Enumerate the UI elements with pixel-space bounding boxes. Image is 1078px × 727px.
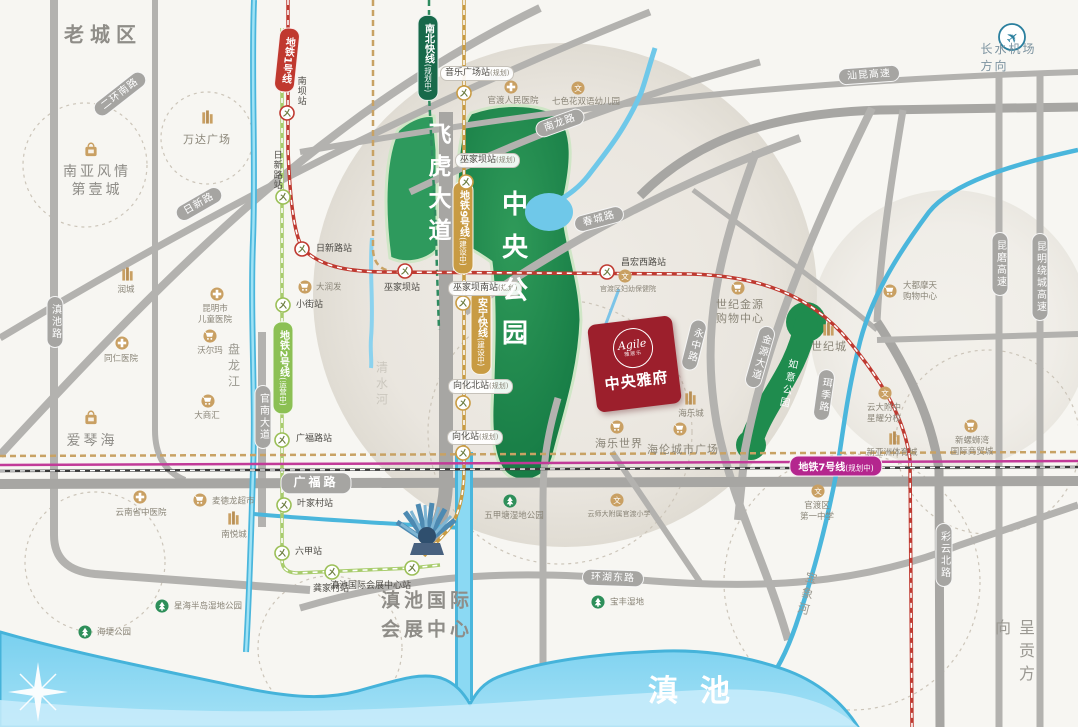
tree-icon — [78, 625, 93, 640]
cross-icon — [133, 490, 148, 505]
station-name: 小街站 — [296, 300, 323, 310]
cart-icon — [731, 281, 746, 296]
poi-label-26: 大都摩天 购物中心 — [903, 281, 937, 303]
station-name: 向化站 — [452, 432, 479, 442]
metro-line-label-3: 地铁9号线(建设中) — [453, 181, 474, 274]
station-label-1: 日新路站 — [270, 150, 283, 190]
metro-station-icon — [599, 264, 615, 280]
metro-station-icon — [456, 85, 472, 101]
station-label-14: 巫家坝站 — [384, 282, 420, 295]
station-name: 昌宏西路站 — [621, 258, 666, 268]
road-label-10: 环湖东路 — [582, 568, 645, 587]
poi-label-7: 同仁医院 — [104, 354, 138, 365]
cross-icon — [504, 80, 519, 95]
road-label-0: 二环南路 — [90, 68, 149, 120]
poi-label-8: 大商汇 — [194, 411, 220, 422]
project-logo: Agile 雅居乐 — [610, 326, 655, 371]
poi-label-14: 星海半岛湿地公园 — [174, 601, 242, 612]
building-icon — [887, 431, 902, 446]
poi-label-5: 昆明市 儿童医院 — [198, 304, 232, 326]
metro-station-icon — [458, 174, 474, 190]
project-brand-sub: 雅居乐 — [624, 349, 643, 358]
poi-label-6: 沃尔玛 — [197, 346, 223, 357]
metro-station-icon — [324, 564, 340, 580]
road-label-7: 昆磨高速 — [992, 232, 1009, 296]
cart-icon — [883, 284, 898, 299]
metro-station-icon — [455, 295, 471, 311]
metro-line-name: 地铁9号线 — [458, 190, 469, 237]
road-label-14: 珥季路 — [812, 368, 836, 422]
station-name: 南坝站 — [296, 76, 306, 106]
poi-label-3: 七色花双语幼儿园 — [552, 97, 620, 108]
metro-station-icon — [274, 432, 290, 448]
cart-icon — [610, 420, 625, 435]
station-status: (规划) — [490, 69, 509, 77]
labels-layer: 二环南路日新路滇池路官南大道南龙路春城路汕昆高速昆磨高速昆明绕城高速广福路环湖东… — [0, 0, 1078, 727]
poi-label-27: 新螺蛳湾 国际商贸城 — [951, 436, 994, 458]
project-name: 中央雅府 — [593, 365, 680, 396]
building-icon — [200, 110, 215, 125]
poi-label-15: 海埂公园 — [97, 627, 131, 638]
metro-station-icon — [276, 497, 292, 513]
metro-line-name: 安宁快线 — [476, 298, 487, 338]
area-label-5: 宝象河 — [793, 570, 821, 621]
area-label-0: 老城区 — [64, 19, 142, 48]
poi-label-18: 云师大附属官渡小学 — [588, 510, 651, 519]
building-icon — [683, 391, 698, 406]
station-label-3: 小街站 — [296, 299, 323, 312]
area-label-10: 滇池国际 会展中心 — [381, 587, 473, 644]
metro-line-name: 南北快线 — [423, 24, 434, 64]
station-label-0: 南坝站 — [294, 76, 307, 106]
poi-label-2: 官渡人民医院 — [487, 96, 538, 107]
cart-icon — [673, 422, 688, 437]
tree-icon — [503, 494, 518, 509]
tree-icon — [591, 595, 606, 610]
metro-line-label-2: 南北快线(规划中) — [418, 15, 439, 101]
station-name: 六甲站 — [295, 547, 322, 557]
poi-label-13: 南悦城 — [221, 530, 247, 541]
metro-station-icon — [397, 263, 413, 279]
poi-label-28: 官渡区 第一中学 — [800, 501, 834, 523]
station-status: (规划) — [479, 433, 498, 441]
bag-icon — [84, 143, 99, 158]
road-label-4: 南龙路 — [533, 106, 587, 139]
building-icon — [821, 322, 836, 337]
area-label-2: 飞虎大道 — [420, 122, 454, 250]
school-icon — [610, 493, 625, 508]
road-label-3: 官南大道 — [255, 385, 272, 449]
cross-icon — [115, 336, 130, 351]
station-label-6: 六甲站 — [295, 546, 322, 559]
station-name: 叶家村站 — [297, 499, 333, 509]
poi-label-4: 润城 — [117, 285, 134, 296]
poi-label-12: 麦德龙超市 — [212, 496, 255, 507]
poi-label-24: 云大附中 星耀分校 — [867, 403, 901, 425]
station-label-4: 广福路站 — [296, 433, 332, 446]
school-icon — [878, 386, 893, 401]
metro-station-icon — [274, 545, 290, 561]
poi-label-25: 新亚洲体育城 — [866, 448, 917, 459]
road-label-2: 滇池路 — [47, 296, 64, 348]
station-label-10: 巫家坝站(规划) — [455, 153, 520, 168]
poi-label-11: 云南省中医院 — [115, 508, 166, 519]
road-label-6: 汕昆高速 — [837, 64, 900, 85]
area-label-1: 中央公园 — [495, 190, 532, 362]
cart-icon — [298, 280, 313, 295]
station-status: (规划) — [489, 382, 508, 390]
cart-icon — [193, 493, 208, 508]
poi-label-17: 宝丰湿地 — [610, 597, 644, 608]
cart-icon — [203, 329, 218, 344]
school-icon — [571, 81, 586, 96]
metro-line-label-1: 地铁2号线(运营中) — [273, 321, 294, 414]
metro-station-icon — [275, 297, 291, 313]
station-name: 巫家坝南站 — [453, 283, 498, 293]
poi-label-29: 官渡区妇幼保健院 — [600, 285, 656, 294]
metro-station-icon — [275, 189, 291, 205]
road-label-1: 日新路 — [173, 184, 226, 224]
metro-station-icon — [404, 560, 420, 576]
building-icon — [226, 511, 241, 526]
poi-label-10: 大润发 — [316, 282, 342, 293]
road-label-12: 金源大道 — [743, 324, 777, 390]
station-label-9: 音乐广场站(规划) — [440, 66, 514, 81]
station-name: 音乐广场站 — [445, 68, 490, 78]
poi-label-19: 海乐世界 — [595, 437, 643, 451]
road-label-8: 昆明绕城高速 — [1032, 233, 1049, 321]
metro-station-icon — [279, 105, 295, 121]
station-name: 巫家坝站 — [384, 283, 420, 293]
road-label-9: 广福路 — [280, 472, 351, 494]
metro-line-status: (运营中) — [279, 377, 288, 405]
poi-label-22: 世纪金源 购物中心 — [716, 298, 764, 327]
metro-line-name: 地铁2号线 — [278, 330, 289, 377]
area-label-8: 长水机场方向 — [981, 40, 1046, 74]
station-label-12: 向化北站(规划) — [448, 379, 513, 394]
station-name: 向化北站 — [453, 381, 489, 391]
metro-station-icon — [455, 445, 471, 461]
metro-line-status: (建设中) — [459, 237, 468, 265]
area-label-9: 滇池 — [648, 666, 752, 710]
poi-label-23: 世纪城 — [811, 340, 847, 354]
project-marker: Agile 雅居乐 中央雅府 — [587, 315, 682, 413]
area-label-7: 呈贡方向 — [989, 619, 1037, 691]
area-label-4: 盘龙江 — [226, 343, 243, 391]
area-label-3: 清水河 — [374, 361, 391, 409]
school-icon — [811, 484, 826, 499]
station-name: 日新路站 — [272, 150, 282, 190]
metro-line-name: 地铁7号线 — [798, 463, 845, 474]
metro-line-name: 地铁1号线 — [279, 36, 295, 84]
station-status: (规划) — [496, 156, 515, 164]
station-label-5: 叶家村站 — [297, 498, 333, 511]
poi-label-21: 海乐城 — [678, 409, 704, 420]
metro-line-status: (规划中) — [845, 464, 873, 473]
road-label-13: 永中路 — [679, 318, 708, 373]
poi-label-20: 海伦城市广场 — [647, 443, 719, 457]
bag-icon — [84, 411, 99, 426]
building-icon — [120, 267, 135, 282]
station-name: 日新路站 — [316, 244, 352, 254]
school-icon — [618, 269, 633, 284]
area-label-6: 如意公园 — [774, 357, 799, 411]
poi-label-1: 南亚风情 第壹城 — [63, 163, 131, 199]
metro-station-icon — [294, 241, 310, 257]
station-label-2: 日新路站 — [316, 243, 352, 256]
road-label-11: 彩云北路 — [936, 523, 953, 587]
tree-icon — [155, 599, 170, 614]
road-label-5: 春城路 — [572, 204, 626, 234]
poi-label-16: 五甲塘湿地公园 — [484, 511, 544, 522]
poi-label-9: 爱琴海 — [67, 432, 118, 450]
metro-line-status: (规划中) — [424, 64, 433, 92]
cart-icon — [201, 394, 216, 409]
metro-line-label-4: 安宁快线(建设中) — [471, 289, 492, 375]
station-name: 广福路站 — [296, 434, 332, 444]
metro-line-status: (建设中) — [477, 338, 486, 366]
cross-icon — [210, 287, 225, 302]
poi-label-0: 万达广场 — [183, 133, 231, 147]
station-name: 巫家坝站 — [460, 155, 496, 165]
metro-station-icon — [455, 395, 471, 411]
location-map: 文 — [0, 0, 1078, 727]
cart-icon — [964, 419, 979, 434]
station-label-13: 向化站(规划) — [447, 430, 503, 445]
